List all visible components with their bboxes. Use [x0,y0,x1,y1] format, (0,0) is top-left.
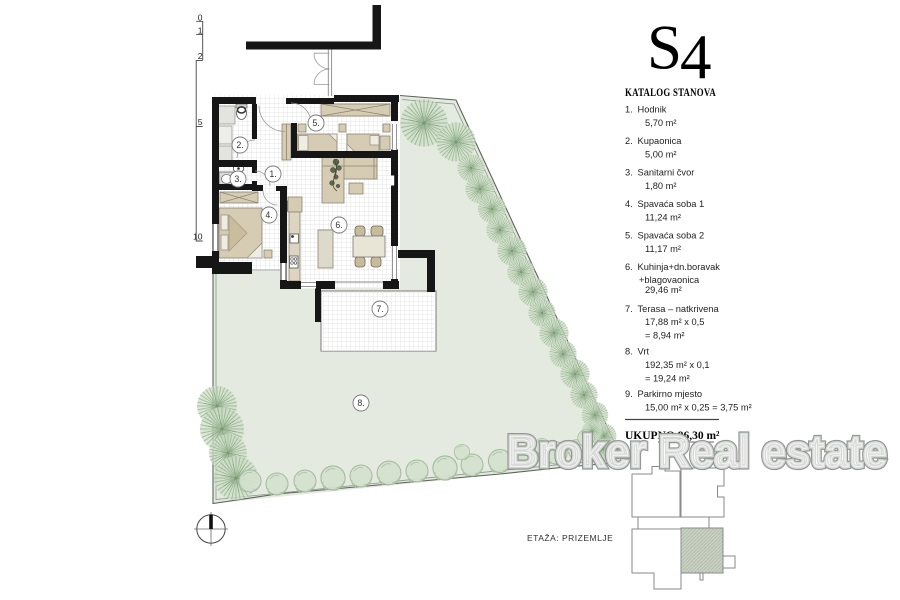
svg-text:Sanitarni čvor: Sanitarni čvor [638,168,695,178]
svg-text:2.: 2. [236,140,243,150]
svg-text:11,17 m²: 11,17 m² [645,244,681,254]
svg-text:5,00 m²: 5,00 m² [645,150,677,160]
svg-text:= 19,24 m²: = 19,24 m² [645,374,690,384]
svg-text:S: S [647,13,682,83]
svg-text:+blagovaonica: +blagovaonica [639,275,700,285]
svg-text:15,00 m² x 0,25 = 3,75 m²: 15,00 m² x 0,25 = 3,75 m² [645,403,752,413]
svg-text:11,24 m²: 11,24 m² [645,213,681,223]
svg-text:0: 0 [198,13,203,23]
svg-text:17,88 m² x 0,5: 17,88 m² x 0,5 [645,317,704,327]
svg-text:ETAŽA: PRIZEMLJE: ETAŽA: PRIZEMLJE [527,533,613,543]
svg-text:Spavaća soba 1: Spavaća soba 1 [638,199,705,209]
svg-text:1.: 1. [269,169,276,179]
svg-text:= 8,94 m²: = 8,94 m² [645,331,685,341]
svg-text:5,70 m²: 5,70 m² [645,118,677,128]
svg-text:1.: 1. [625,105,633,115]
svg-text:Broker Real estate: Broker Real estate [507,426,887,477]
svg-text:Spavaća soba 2: Spavaća soba 2 [638,231,705,241]
svg-text:9.: 9. [625,389,633,399]
svg-text:29,46 m²: 29,46 m² [645,285,682,295]
svg-text:1,80 m²: 1,80 m² [645,181,677,191]
svg-text:3.: 3. [625,168,633,178]
svg-text:2: 2 [198,51,203,61]
svg-text:5.: 5. [625,231,633,241]
svg-text:4.: 4. [265,210,272,220]
svg-text:8.: 8. [357,398,364,408]
svg-text:6.: 6. [625,262,633,272]
svg-text:3.: 3. [234,174,241,184]
svg-text:7.: 7. [376,304,383,314]
svg-text:Kuhinja+dn.boravak: Kuhinja+dn.boravak [638,262,721,272]
svg-text:192,35 m² x 0,1: 192,35 m² x 0,1 [645,360,710,370]
svg-text:Terasa – natkrivena: Terasa – natkrivena [638,304,720,314]
svg-text:8.: 8. [625,347,633,357]
svg-text:5: 5 [198,117,203,127]
svg-text:KATALOG STANOVA: KATALOG STANOVA [625,87,716,99]
svg-text:Hodnik: Hodnik [638,105,667,115]
svg-text:4: 4 [680,22,712,92]
svg-text:6.: 6. [335,220,342,230]
svg-text:5.: 5. [312,118,319,128]
svg-text:Kupaonica: Kupaonica [638,136,683,146]
svg-text:4.: 4. [625,199,633,209]
svg-text:Parkirno mjesto: Parkirno mjesto [638,389,703,399]
svg-text:1: 1 [198,26,203,36]
svg-text:Vrt: Vrt [638,347,650,357]
svg-text:7.: 7. [625,304,633,314]
svg-text:2.: 2. [625,136,633,146]
svg-text:10: 10 [193,232,203,242]
